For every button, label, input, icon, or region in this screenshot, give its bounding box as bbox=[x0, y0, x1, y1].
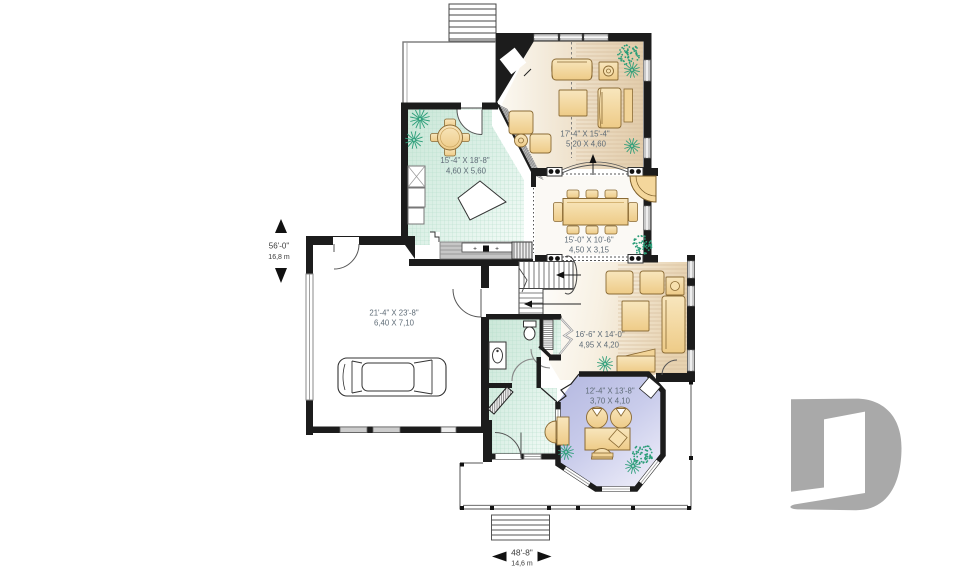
svg-text:4,95 X 4,20: 4,95 X 4,20 bbox=[579, 341, 620, 350]
svg-text:6,40 X 7,10: 6,40 X 7,10 bbox=[374, 319, 415, 328]
svg-text:4,60 X 5,60: 4,60 X 5,60 bbox=[446, 167, 487, 176]
svg-text:5,20 X 4,60: 5,20 X 4,60 bbox=[566, 140, 607, 149]
svg-text:14,6 m: 14,6 m bbox=[511, 561, 533, 568]
svg-text:16'-6" X 14'-0": 16'-6" X 14'-0" bbox=[575, 330, 624, 339]
svg-text:16,8 m: 16,8 m bbox=[268, 254, 290, 261]
svg-text:+: + bbox=[495, 246, 499, 253]
svg-text:3,70 X 4,10: 3,70 X 4,10 bbox=[590, 397, 631, 406]
svg-text:12'-4" X 13'-8": 12'-4" X 13'-8" bbox=[585, 387, 634, 396]
svg-text:4,50 X 3,15: 4,50 X 3,15 bbox=[569, 246, 610, 255]
svg-text:15'-4" X 18'-8": 15'-4" X 18'-8" bbox=[440, 156, 489, 165]
svg-text:48'-8": 48'-8" bbox=[511, 548, 533, 558]
svg-text:17'-4" X 15'-4": 17'-4" X 15'-4" bbox=[560, 130, 609, 139]
svg-text:15'-0" X 10'-6": 15'-0" X 10'-6" bbox=[564, 236, 613, 245]
svg-text:56'-0": 56'-0" bbox=[269, 242, 290, 251]
svg-text:+: + bbox=[473, 246, 477, 253]
svg-text:21'-4" X 23'-8": 21'-4" X 23'-8" bbox=[369, 309, 418, 318]
